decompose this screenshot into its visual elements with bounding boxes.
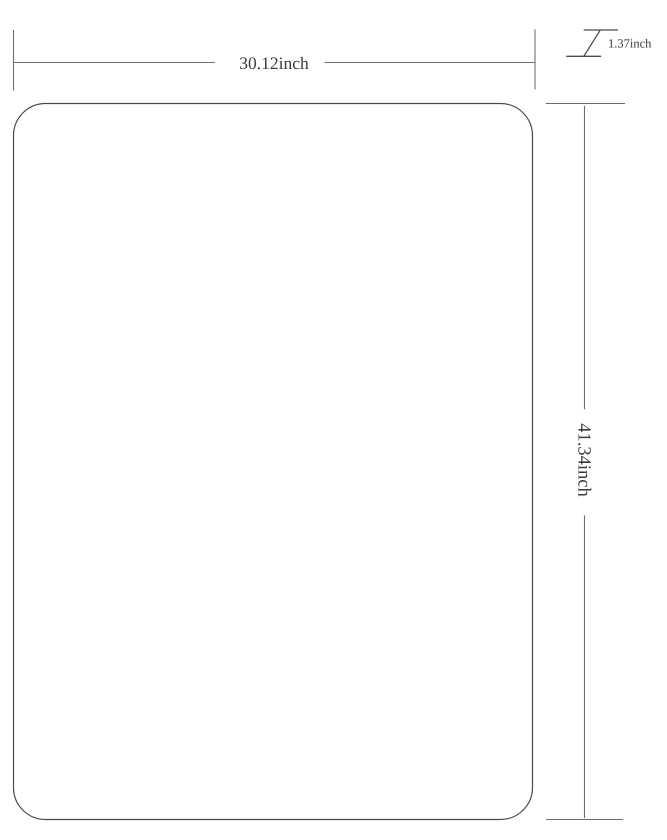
svg-text:1.37inch: 1.37inch — [608, 37, 652, 51]
svg-text:41.34inch: 41.34inch — [574, 423, 594, 496]
svg-text:30.12inch: 30.12inch — [239, 53, 309, 73]
